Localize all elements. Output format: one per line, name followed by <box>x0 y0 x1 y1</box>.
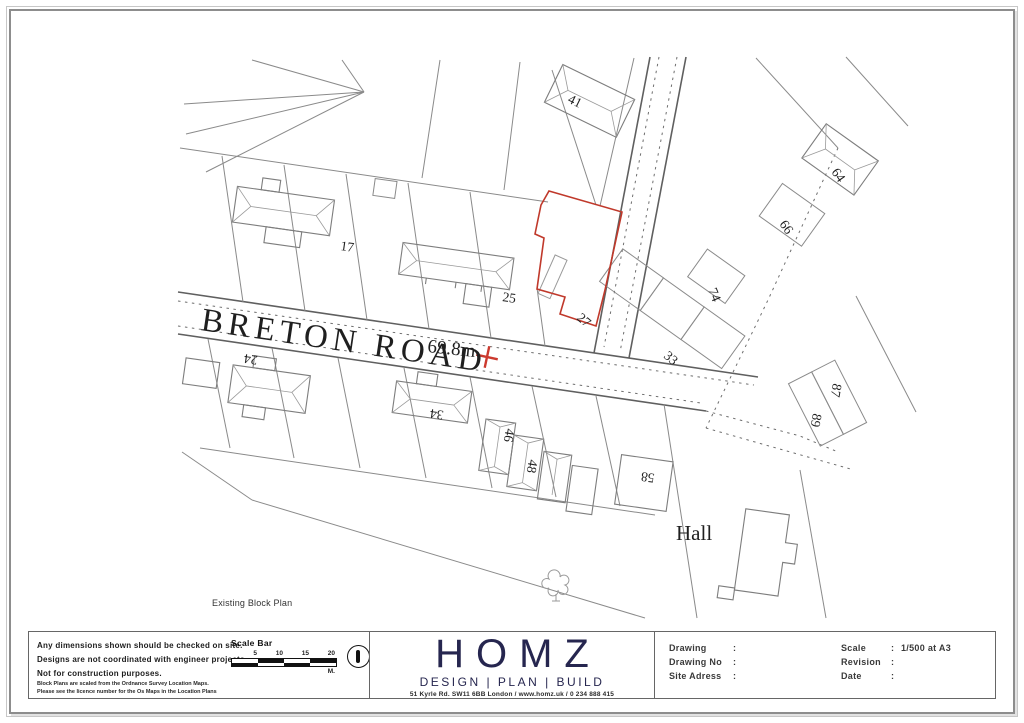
site-address-row: Site Adress : <box>669 669 743 683</box>
fine-print-line-1: Block Plans are scaled from the Ordnance… <box>37 680 217 688</box>
scale-bar-ticks: 5 10 15 20 <box>231 650 335 657</box>
hall-label: Hall <box>676 521 712 545</box>
brand-logo: HOMZ <box>370 634 655 674</box>
house-24 <box>226 353 312 425</box>
house-number-41: 41 <box>566 91 585 110</box>
house-number-58: 58 <box>640 469 656 486</box>
date-label: Date <box>841 671 891 681</box>
scale-bar: Scale Bar 5 10 15 20 M. <box>231 638 337 675</box>
plots-87-89 <box>788 360 866 446</box>
house-number-46: 46 <box>501 427 518 443</box>
scale-tick-15: 15 <box>283 650 309 657</box>
house-number-17: 17 <box>340 238 356 255</box>
scale-bar-label: Scale Bar <box>231 638 337 648</box>
site-address-label: Site Adress <box>669 671 733 681</box>
revision-row: Revision : <box>841 655 951 669</box>
fine-print: Block Plans are scaled from the Ordnance… <box>37 680 217 697</box>
house-41 <box>544 64 634 137</box>
date-row: Date : <box>841 669 951 683</box>
notes-cell: Any dimensions shown should be checked o… <box>28 631 370 699</box>
brand-cell: HOMZ DESIGN | PLAN | BUILD 51 Kyrle Rd. … <box>369 631 656 699</box>
drawing-no-label: Drawing No <box>669 657 733 667</box>
house-terrace-25 <box>396 243 514 310</box>
note-line-3: Not for construction purposes. <box>37 667 247 681</box>
scale-bar-unit: M. <box>231 668 335 675</box>
scale-value: 1/500 at A3 <box>901 643 951 653</box>
brand-tagline: DESIGN | PLAN | BUILD <box>370 675 655 689</box>
house-number-48: 48 <box>524 458 541 474</box>
house-number-64: 64 <box>829 165 849 185</box>
fine-print-line-2: Please see the licence number for the Os… <box>37 688 217 696</box>
drawing-label: Drawing <box>669 643 733 653</box>
title-block: Any dimensions shown should be checked o… <box>28 631 996 699</box>
site-boundary <box>535 191 622 326</box>
drawing-info-cell: Drawing : Drawing No : Site Adress : Sc <box>654 631 996 699</box>
note-line-2: Designs are not coordinated with enginee… <box>37 653 247 667</box>
disclaimer-notes: Any dimensions shown should be checked o… <box>37 639 247 681</box>
revision-label: Revision <box>841 657 891 667</box>
note-line-1: Any dimensions shown should be checked o… <box>37 639 247 653</box>
hall-building <box>717 507 801 608</box>
block-plan-map: BRETON ROAD 69.8m Hall 41 17 25 27 33 74… <box>0 0 1024 723</box>
house-number-87: 87 <box>828 382 845 398</box>
map-caption: Existing Block Plan <box>212 598 292 608</box>
scale-tick-5: 5 <box>231 650 257 657</box>
road-dashed-lines <box>178 57 854 470</box>
brand-address: 51 Kyrle Rd. SW11 6BB London / www.homz.… <box>370 691 655 698</box>
north-arrow-icon <box>347 645 370 668</box>
scale-row: Scale : 1/500 at A3 <box>841 641 951 655</box>
scale-label: Scale <box>841 643 891 653</box>
scale-bar-graphic <box>231 658 337 667</box>
house-64 <box>802 124 878 195</box>
site-garage <box>538 255 567 299</box>
house-number-34: 34 <box>429 406 445 423</box>
info-column-right: Scale : 1/500 at A3 Revision : Date : <box>841 641 951 683</box>
scale-tick-10: 10 <box>257 650 283 657</box>
drawing-row: Drawing : <box>669 641 743 655</box>
house-number-89: 89 <box>808 412 825 428</box>
scale-tick-20: 20 <box>309 650 335 657</box>
north-plot-lines <box>180 57 908 346</box>
info-column-left: Drawing : Drawing No : Site Adress : <box>669 641 743 683</box>
house-number-25: 25 <box>502 289 518 306</box>
house-number-27: 27 <box>574 310 594 330</box>
drawing-sheet: BRETON ROAD 69.8m Hall 41 17 25 27 33 74… <box>0 0 1024 723</box>
house-number-66: 66 <box>777 217 797 237</box>
tree-symbol <box>542 570 569 601</box>
house-number-24: 24 <box>243 351 259 368</box>
drawing-no-row: Drawing No : <box>669 655 743 669</box>
house-left-stub <box>182 358 219 388</box>
house-terrace-17 <box>230 175 336 252</box>
